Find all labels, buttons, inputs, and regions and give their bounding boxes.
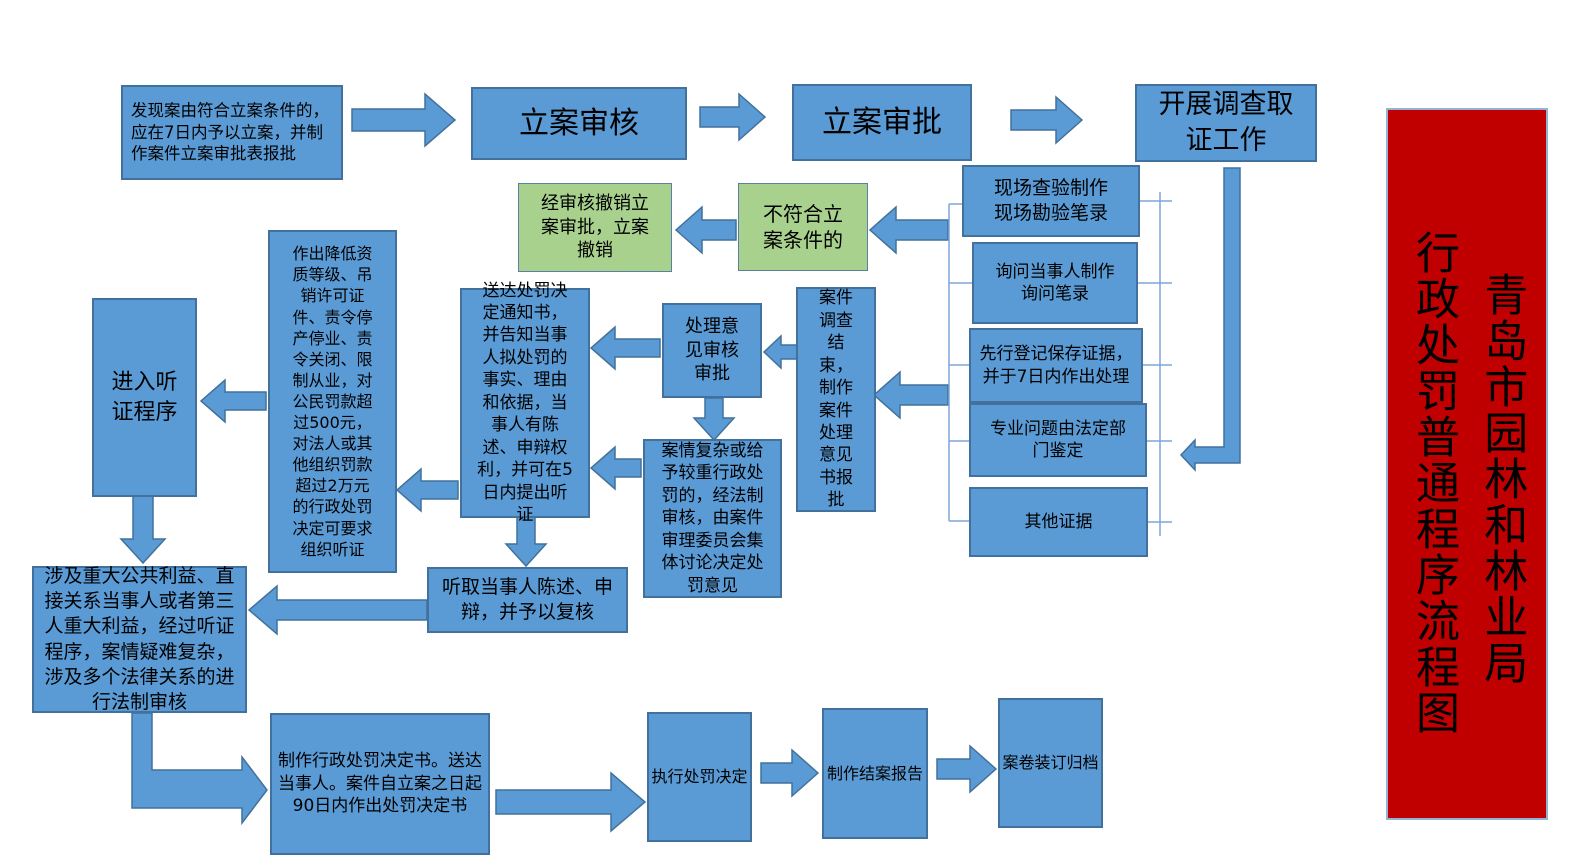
arrow-investigation-end-to-opinion bbox=[764, 336, 798, 368]
node-investigation: 开展调查取证工作 bbox=[1135, 84, 1317, 162]
arrow-heavy-to-hearing bbox=[201, 380, 266, 422]
arrow-review-to-approval bbox=[700, 94, 765, 140]
arrow-execute-to-report bbox=[761, 750, 818, 796]
node-complex-case: 案情复杂或给予较重行政处罚的，经法制审核，由案件审理委员会集体讨论决定处罚意见 bbox=[643, 439, 782, 598]
arrow-bracket-to-notmeet bbox=[870, 207, 948, 253]
title-banner-text: 青岛市园林和林业局 行政处罚普通程序流程图 bbox=[1399, 110, 1535, 818]
banner-org-name: 青岛市园林和林业局 bbox=[1467, 110, 1535, 818]
node-penalty-decision: 制作行政处罚决定书。送达当事人。案件自立案之日起90日内作出处罚决定书 bbox=[270, 713, 490, 855]
node-legal-review: 涉及重大公共利益、直接关系当事人或者第三人重大利益，经过听证程序，案情疑难复杂，… bbox=[32, 566, 247, 713]
node-notice-delivery: 送达处罚决定通知书，并告知当事人拟处罚的事实、理由和依据，当事人有陈述、申辩权利… bbox=[460, 288, 590, 518]
node-evidence-preservation: 先行登记保存证据，并于7日内作出处理 bbox=[969, 328, 1143, 403]
arrow-complex-to-notice bbox=[591, 447, 641, 489]
title-banner: 青岛市园林和林业局 行政处罚普通程序流程图 bbox=[1386, 108, 1548, 820]
node-statement-defense: 听取当事人陈述、申辩，并予以复核 bbox=[427, 567, 628, 633]
arrow-report-to-archive bbox=[937, 746, 996, 792]
node-execute-penalty: 执行处罚决定 bbox=[647, 712, 752, 842]
node-site-inspection: 现场查验制作现场勘验笔录 bbox=[962, 165, 1140, 237]
node-other-evidence: 其他证据 bbox=[969, 487, 1148, 557]
flowchart-canvas: 发现案由符合立案条件的，应在7日内予以立案，并制作案件立案审批表报批 立案审核 … bbox=[0, 0, 1572, 866]
node-expert-appraisal: 专业问题由法定部门鉴定 bbox=[969, 403, 1147, 477]
node-hearing-procedure: 进入听证程序 bbox=[92, 298, 197, 497]
node-filing-discover: 发现案由符合立案条件的，应在7日内予以立案，并制作案件立案审批表报批 bbox=[121, 85, 343, 180]
arrow-notice-to-heavy bbox=[397, 469, 458, 511]
node-archive: 案卷装订归档 bbox=[998, 698, 1103, 828]
elbow-arrow-legalreview-to-decision bbox=[132, 713, 267, 823]
arrow-statement-to-legalreview bbox=[249, 586, 427, 634]
arrow-approval-to-investigation bbox=[1011, 97, 1082, 143]
arrow-discover-to-review bbox=[352, 94, 455, 146]
banner-chart-title: 行政处罚普通程序流程图 bbox=[1399, 110, 1467, 818]
arrow-bracket-to-investigation-end bbox=[874, 372, 948, 418]
node-filing-approval: 立案审批 bbox=[792, 84, 972, 161]
arrow-hearing-to-legalreview bbox=[121, 495, 165, 563]
arrow-decision-to-execute bbox=[496, 773, 645, 831]
node-not-meet-conditions: 不符合立案条件的 bbox=[738, 183, 868, 271]
arrow-opinion-to-notice bbox=[591, 327, 660, 369]
node-opinion-review: 处理意见审核审批 bbox=[662, 303, 762, 398]
node-heavy-penalty: 作出降低资质等级、吊销许可证件、责令停产停业、责令关闭、限制从业，对公民罚款超过… bbox=[268, 230, 397, 573]
node-closing-report: 制作结案报告 bbox=[822, 708, 928, 839]
node-investigation-end: 案件调查结束，制作案件处理意见书报批 bbox=[796, 287, 876, 512]
elbow-arrow-investigation-to-evidence bbox=[1181, 168, 1240, 470]
arrow-notmeet-to-revoke bbox=[676, 207, 736, 253]
node-revoke-filing: 经审核撤销立案审批，立案撤销 bbox=[518, 183, 672, 272]
arrow-opinion-to-complex bbox=[694, 398, 734, 440]
node-inquiry-record: 询问当事人制作询问笔录 bbox=[972, 242, 1138, 324]
node-filing-review: 立案审核 bbox=[471, 87, 687, 160]
